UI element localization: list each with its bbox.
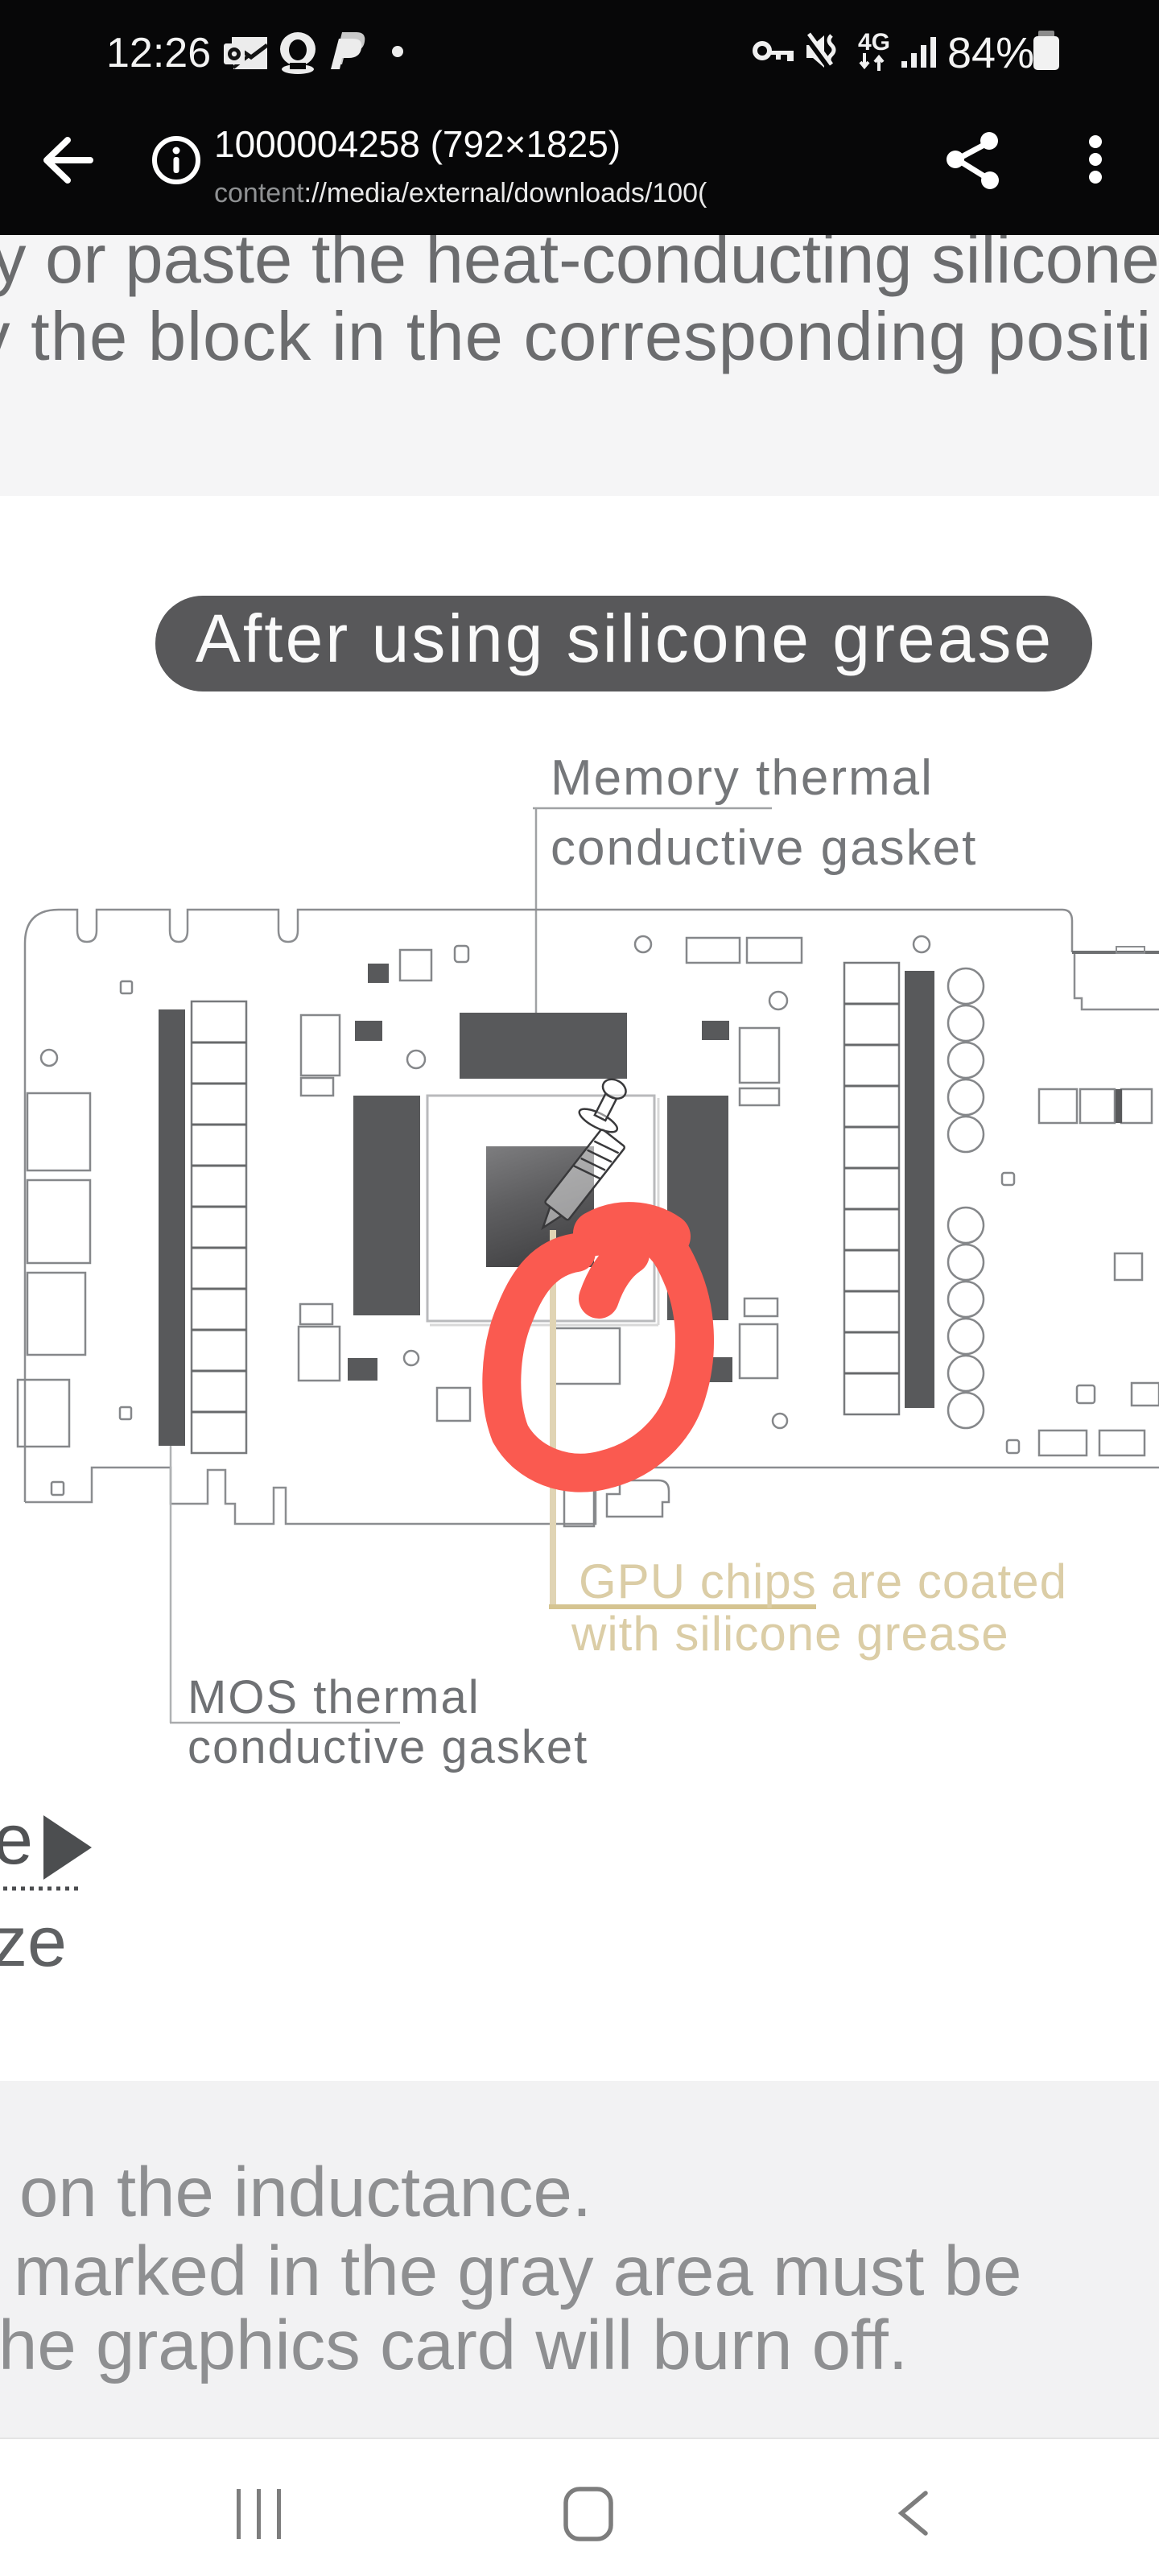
svg-text:MOS thermal: MOS thermal (188, 1671, 481, 1724)
svg-text:After using silicone grease: After using silicone grease (196, 601, 1054, 676)
svg-text:Memory thermal: Memory thermal (551, 750, 934, 806)
svg-text:conductive gasket: conductive gasket (551, 820, 977, 876)
svg-text:ze: ze (0, 1901, 67, 1981)
svg-text:e: e (0, 1799, 33, 1879)
svg-text:with silicone grease: with silicone grease (571, 1607, 1009, 1661)
svg-text:conductive gasket: conductive gasket (188, 1721, 588, 1773)
svg-text:GPU chips are coated: GPU chips are coated (579, 1554, 1067, 1608)
